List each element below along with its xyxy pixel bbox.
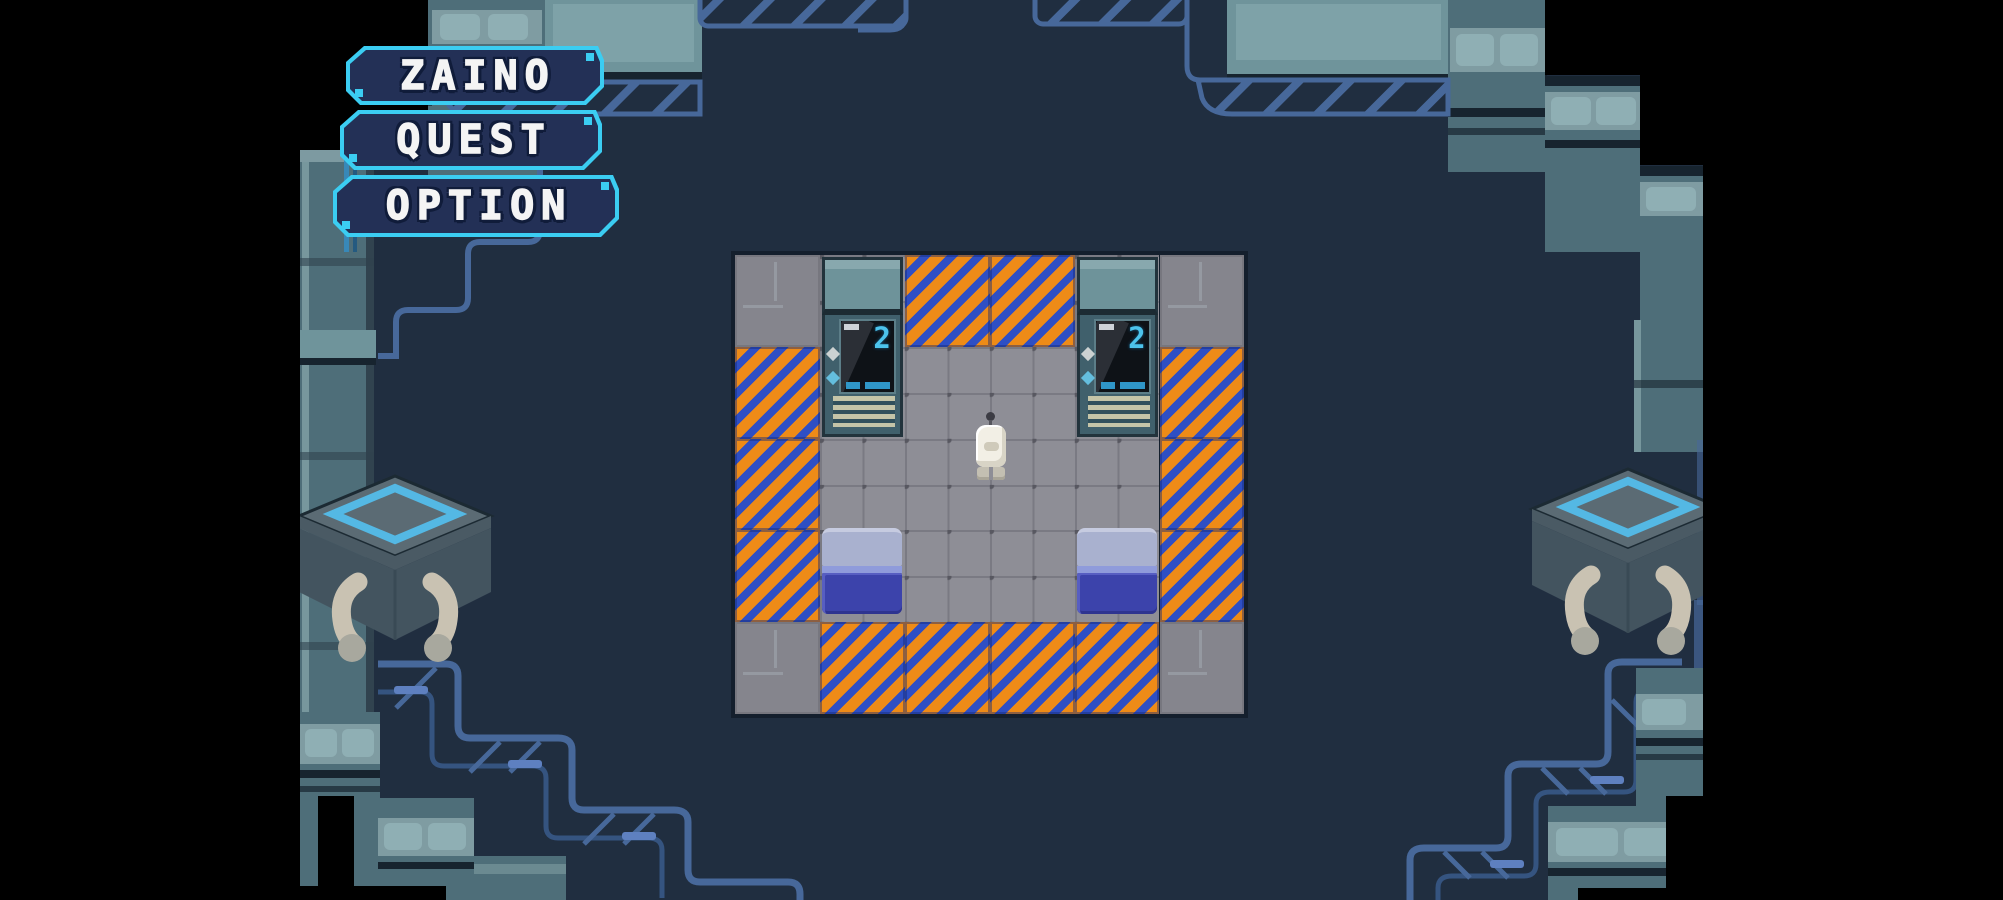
console-button-icon: [1081, 371, 1095, 385]
screen-readout: [846, 382, 890, 389]
screen-digit: 2: [873, 324, 890, 353]
game-screen: 22 ZAINO QUEST OPTION: [0, 0, 2003, 900]
tile-floor[interactable]: [905, 530, 990, 622]
bottom-right-machines: [1548, 668, 1703, 900]
bed[interactable]: [1077, 528, 1157, 614]
tile-hazard: [735, 530, 820, 622]
tile-hazard: [1075, 622, 1160, 714]
player-face: [984, 442, 999, 451]
room-map: 22: [735, 255, 1244, 714]
letterbox-right: [1703, 0, 2003, 900]
console-body: 2: [1077, 315, 1158, 437]
menu-button-option[interactable]: OPTION: [333, 175, 619, 237]
bed-blanket: [822, 573, 902, 614]
bed-line: [822, 566, 902, 573]
screen-pixels: [844, 324, 859, 330]
console-top: [1077, 257, 1158, 315]
letterbox-left: [0, 0, 300, 900]
console-screen: 2: [839, 319, 896, 394]
tile-panel: [735, 255, 820, 347]
console-top: [822, 257, 903, 315]
tile-hazard: [905, 255, 990, 347]
bed-pillow: [1077, 528, 1157, 566]
bed-blanket: [1077, 573, 1157, 614]
tile-panel: [1160, 255, 1245, 347]
tile-hazard: [905, 622, 990, 714]
tile-hazard: [735, 347, 820, 439]
console-screen: 2: [1094, 319, 1151, 394]
tile-hazard: [820, 622, 905, 714]
console-button-icon: [826, 371, 840, 385]
tile-panel: [735, 622, 820, 714]
tile-panel: [1160, 622, 1245, 714]
screen-pixels: [1099, 324, 1114, 330]
player-feet: [977, 467, 1005, 480]
menu-button-quest[interactable]: QUEST: [340, 110, 602, 170]
console-terminal[interactable]: 2: [1077, 257, 1158, 437]
top-right-machine: [1227, 0, 1703, 452]
menu-button-zaino[interactable]: ZAINO: [346, 46, 604, 105]
bed[interactable]: [822, 528, 902, 614]
console-button-icon: [1081, 347, 1095, 361]
menu-button-label: QUEST: [340, 110, 602, 170]
screen-readout: [1101, 382, 1145, 389]
console-button-icon: [826, 347, 840, 361]
menu-button-label: OPTION: [333, 175, 619, 237]
tile-floor[interactable]: [820, 439, 905, 531]
console-body: 2: [822, 315, 903, 437]
tile-floor[interactable]: [1075, 439, 1160, 531]
tile-hazard: [1160, 347, 1245, 439]
tile-hazard: [735, 439, 820, 531]
console-terminal[interactable]: 2: [822, 257, 903, 437]
bed-pillow: [822, 528, 902, 566]
tile-floor[interactable]: [990, 530, 1075, 622]
tile-hazard: [990, 255, 1075, 347]
tile-hazard: [990, 622, 1075, 714]
tile-hazard: [1160, 530, 1245, 622]
console-vents: [1088, 396, 1150, 427]
console-vents: [833, 396, 895, 427]
screen-digit: 2: [1128, 324, 1145, 353]
player-character[interactable]: [973, 412, 1009, 480]
tile-hazard: [1160, 439, 1245, 531]
bed-line: [1077, 566, 1157, 573]
menu-button-label: ZAINO: [346, 46, 604, 105]
